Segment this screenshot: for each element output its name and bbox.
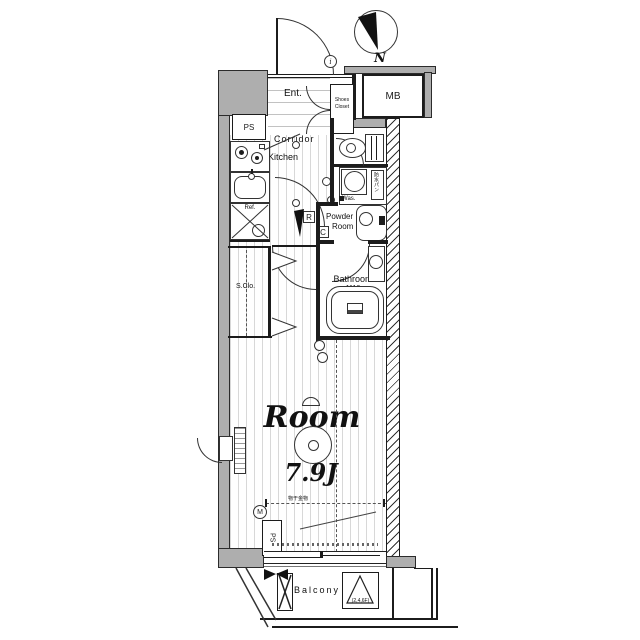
kitchen-faucet-stem	[251, 169, 253, 174]
vanity-faucet	[379, 216, 385, 225]
room-cap-symbol-1	[314, 340, 325, 351]
storage-closet-label: S.Clo.	[236, 283, 255, 290]
doorbell-label: i	[329, 58, 331, 66]
north-wall-mb	[344, 66, 436, 74]
doorbell-icon: i	[324, 55, 337, 68]
kitchen-faucet	[248, 173, 255, 180]
window-sill-line	[264, 566, 386, 567]
closet-north-line	[228, 246, 270, 248]
kitchen-closet-divider	[230, 240, 270, 242]
controller-mark-label: C	[320, 228, 326, 237]
west-service-door-arc	[197, 438, 222, 463]
stove-burner-2-center	[255, 156, 259, 160]
laundry-fitting-note: 物干金物	[288, 495, 308, 502]
bathtub-control	[347, 303, 363, 314]
balcony-chamfer-1	[246, 568, 276, 620]
floor-plan: i N MB Ent. Shoes Closet PS PS Corridor …	[0, 0, 640, 640]
balcony-bottom-line	[260, 618, 438, 620]
window-lock	[320, 551, 323, 558]
east-hatched-wall	[386, 118, 400, 568]
balcony-top-line-right	[414, 568, 432, 569]
balcony-label: Balcony	[294, 585, 340, 595]
powder-north-wall-stub	[316, 202, 338, 206]
room-door-leaf	[272, 245, 316, 247]
balcony-right-edge-1	[431, 568, 433, 620]
shoes-closet-label2: Closet	[330, 104, 354, 110]
refrigerator-label: Ref.	[238, 205, 262, 211]
balcony-outer-line	[272, 626, 458, 628]
partition-board	[277, 573, 293, 611]
closet-south-line	[228, 336, 272, 338]
laundry-bracket-right	[383, 499, 385, 507]
southwest-wall-block	[218, 548, 264, 568]
shutter-box	[234, 427, 246, 474]
toilet-tank	[365, 134, 384, 162]
entrance-label: Ent.	[284, 88, 302, 99]
range-mark-box: R	[303, 211, 315, 223]
powder-west-wall	[316, 202, 320, 344]
balcony-divider-line	[392, 568, 394, 618]
toilet-west-wall	[330, 118, 334, 206]
toilet-bowl-inner	[346, 143, 356, 153]
powder-room-label2: Room	[332, 222, 353, 231]
window-tick-row	[272, 543, 378, 546]
window-sash-right	[322, 555, 380, 556]
stove-burner-1-center	[239, 150, 244, 155]
ps-top-label: PS	[244, 123, 255, 132]
toilet-tank-line1	[371, 136, 372, 160]
toilet-tank-line2	[376, 136, 377, 160]
meter-circle-label: M	[257, 509, 263, 516]
closet-front-line	[268, 246, 271, 338]
evacuation-hatch-floors: (2,4,6F)	[342, 598, 379, 604]
entry-threshold-line2	[268, 77, 354, 78]
shoes-closet-label1: Shoes	[330, 97, 354, 103]
washer-pan-note: 防水パン	[373, 172, 380, 192]
window-sash-left	[264, 557, 322, 558]
washer-drum	[344, 171, 365, 192]
meter-box: MB	[362, 74, 424, 118]
washer-label: Was.	[342, 196, 355, 202]
partition-triangle-left-icon	[264, 569, 276, 580]
washer-corner-mark	[339, 196, 344, 201]
meter-circle: M	[253, 505, 267, 519]
closet-hanger-pipe	[246, 250, 247, 336]
laundry-bracket-line	[266, 503, 386, 504]
bath-north-wall-east	[368, 240, 388, 244]
refrigerator-circle	[252, 224, 265, 237]
compass-icon	[354, 10, 398, 54]
meter-box-label: MB	[386, 91, 401, 102]
southeast-wall-stub	[386, 556, 416, 568]
pipe-space-top: PS	[232, 114, 266, 140]
powder-room-label1: Powder	[326, 212, 353, 221]
bath-counter-bowl	[369, 255, 383, 269]
room-dashdot-line	[336, 340, 337, 552]
entrance-door-leaf	[276, 18, 278, 75]
mb-east-wall	[424, 72, 432, 118]
compass-north-label: N	[374, 51, 386, 66]
laundry-bracket-left	[265, 499, 267, 507]
west-wall	[218, 70, 230, 568]
stove-grill	[259, 144, 265, 149]
northwest-wall-block	[218, 70, 268, 116]
ps-bottom-label: PS	[269, 533, 276, 542]
ceiling-rose-inner	[308, 440, 319, 451]
room-cap-symbol-2	[317, 352, 328, 363]
range-mark-label: R	[306, 213, 312, 222]
closet-floor	[230, 248, 270, 336]
vanity-bowl	[359, 212, 373, 226]
balcony-right-edge-2	[436, 568, 438, 620]
ceiling-light-corridor2	[292, 199, 300, 207]
ceiling-light-corridor	[292, 141, 300, 149]
kitchen-label: Kitchen	[268, 152, 298, 162]
bath-south-wall	[316, 336, 390, 340]
